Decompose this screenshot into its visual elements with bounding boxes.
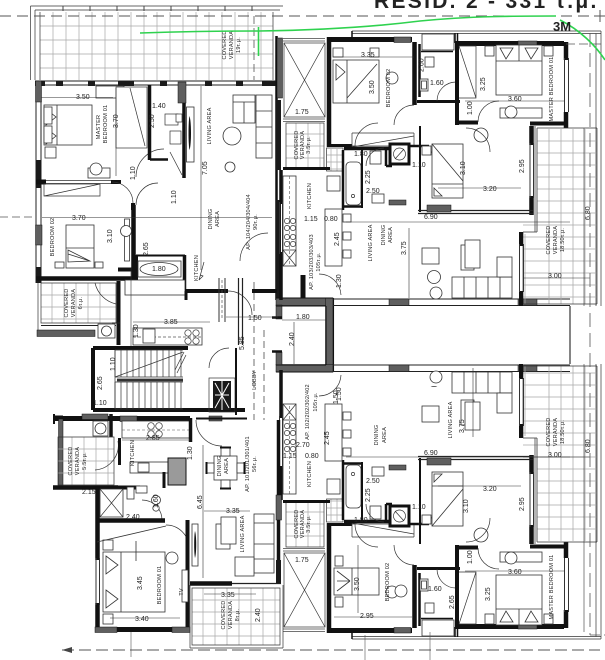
svg-text:LIVING AREA: LIVING AREA xyxy=(448,401,454,438)
svg-text:8τ.μ.: 8τ.μ. xyxy=(235,608,241,621)
svg-text:1.80: 1.80 xyxy=(354,151,368,158)
svg-text:BEDROOM 02: BEDROOM 02 xyxy=(385,563,391,602)
svg-text:0.80: 0.80 xyxy=(324,216,338,223)
svg-text:2.50: 2.50 xyxy=(366,478,380,485)
svg-text:1.10: 1.10 xyxy=(110,357,117,371)
svg-text:3.40: 3.40 xyxy=(135,616,149,623)
svg-text:1.10: 1.10 xyxy=(171,190,178,204)
svg-text:2.50: 2.50 xyxy=(149,114,156,128)
svg-text:COVERED: COVERED xyxy=(546,225,552,254)
svg-text:18.50τ.μ.: 18.50τ.μ. xyxy=(560,420,566,445)
svg-text:AREA: AREA xyxy=(215,211,221,227)
svg-text:1.60: 1.60 xyxy=(430,80,444,87)
svg-text:3.20: 3.20 xyxy=(483,186,497,193)
svg-text:7.05: 7.05 xyxy=(202,161,209,175)
svg-text:5.85: 5.85 xyxy=(239,336,246,350)
svg-text:COVERED: COVERED xyxy=(64,288,70,317)
svg-text:6.90: 6.90 xyxy=(424,214,438,221)
svg-text:2.40: 2.40 xyxy=(255,608,262,622)
svg-text:KITCHEN: KITCHEN xyxy=(130,440,136,466)
svg-text:1.10: 1.10 xyxy=(93,400,107,407)
svg-text:1.60: 1.60 xyxy=(428,586,442,593)
svg-text:2.40: 2.40 xyxy=(289,332,296,346)
svg-text:LIVING AREA: LIVING AREA xyxy=(240,515,246,552)
svg-text:3.00: 3.00 xyxy=(548,452,562,459)
svg-text:AP. 103/203/303/403: AP. 103/203/303/403 xyxy=(309,234,315,290)
svg-text:3.75: 3.75 xyxy=(401,241,408,255)
svg-text:VERANDA: VERANDA xyxy=(553,418,559,447)
svg-text:2.45: 2.45 xyxy=(334,232,341,246)
svg-text:DINING: DINING xyxy=(374,425,380,446)
svg-text:2.65: 2.65 xyxy=(449,595,456,609)
svg-text:2.65: 2.65 xyxy=(97,376,104,390)
svg-text:DINING: DINING xyxy=(381,225,387,246)
svg-text:3.70: 3.70 xyxy=(72,215,86,222)
svg-text:2.45: 2.45 xyxy=(324,431,331,445)
svg-text:3.00: 3.00 xyxy=(548,273,562,280)
svg-text:COVERED: COVERED xyxy=(68,446,74,475)
svg-text:2.95: 2.95 xyxy=(360,613,374,620)
svg-text:2.40: 2.40 xyxy=(126,514,140,521)
svg-text:3.25: 3.25 xyxy=(480,77,487,91)
svg-text:3.35: 3.35 xyxy=(226,508,240,515)
svg-text:AP. 102/202/302/402: AP. 102/202/302/402 xyxy=(305,384,311,440)
svg-text:1.10: 1.10 xyxy=(412,162,426,169)
svg-text:2.95: 2.95 xyxy=(519,497,526,511)
svg-text:VERANDA: VERANDA xyxy=(229,31,235,60)
svg-text:6.90: 6.90 xyxy=(424,450,438,457)
svg-text:2.65: 2.65 xyxy=(143,242,150,256)
svg-text:6τ.μ.: 6τ.μ. xyxy=(78,296,84,309)
svg-text:1.30: 1.30 xyxy=(336,274,343,288)
svg-text:3.70: 3.70 xyxy=(113,114,120,128)
svg-text:LIVING AREA: LIVING AREA xyxy=(368,224,374,261)
svg-text:BEDROOM 02: BEDROOM 02 xyxy=(50,218,56,257)
svg-text:3.10: 3.10 xyxy=(463,499,470,513)
svg-text:1.30: 1.30 xyxy=(187,446,194,460)
svg-text:AP. 104/204/304/404: AP. 104/204/304/404 xyxy=(246,194,252,250)
svg-text:LOBBY: LOBBY xyxy=(252,370,258,390)
svg-text:2.70: 2.70 xyxy=(296,442,310,449)
svg-text:6.80: 6.80 xyxy=(585,206,592,220)
svg-text:2.85: 2.85 xyxy=(146,435,160,442)
svg-text:3.75: 3.75 xyxy=(459,419,466,433)
svg-text:1.40: 1.40 xyxy=(152,103,166,110)
svg-text:AP. 101/201/301/401: AP. 101/201/301/401 xyxy=(245,436,251,492)
svg-text:COVERED: COVERED xyxy=(221,600,227,629)
svg-text:AREA: AREA xyxy=(224,458,230,474)
svg-text:DINING: DINING xyxy=(217,456,223,477)
svg-text:1.80: 1.80 xyxy=(354,517,368,524)
svg-text:1.80: 1.80 xyxy=(152,266,166,273)
svg-text:1.75: 1.75 xyxy=(295,557,309,564)
svg-text:VERANDA: VERANDA xyxy=(553,226,559,255)
svg-text:3.25: 3.25 xyxy=(485,587,492,601)
svg-text:1.15: 1.15 xyxy=(304,216,318,223)
svg-text:2.60: 2.60 xyxy=(419,58,426,72)
svg-text:TV: TV xyxy=(179,588,185,596)
svg-text:3.50: 3.50 xyxy=(369,80,376,94)
svg-text:VERANDA: VERANDA xyxy=(75,447,81,476)
svg-text:MASTER BEDROOM 01: MASTER BEDROOM 01 xyxy=(549,57,555,122)
svg-text:1.50: 1.50 xyxy=(248,315,262,322)
svg-text:1.10: 1.10 xyxy=(412,504,426,511)
svg-text:3.5τ.μ.: 3.5τ.μ. xyxy=(306,515,312,533)
svg-text:3.5τ.μ.: 3.5τ.μ. xyxy=(306,136,312,154)
svg-text:90τ.μ.: 90τ.μ. xyxy=(253,214,259,230)
svg-text:VERANDA: VERANDA xyxy=(228,601,234,630)
svg-text:MASTER BEDROOM 01: MASTER BEDROOM 01 xyxy=(549,555,555,620)
svg-text:3M: 3M xyxy=(553,19,571,34)
svg-text:2.15: 2.15 xyxy=(82,489,96,496)
svg-text:56τ.μ.: 56τ.μ. xyxy=(252,456,258,472)
svg-text:BEDROOM 01: BEDROOM 01 xyxy=(103,105,109,144)
svg-text:2.25: 2.25 xyxy=(365,170,372,184)
svg-text:MASTER: MASTER xyxy=(96,115,102,140)
svg-text:1.60: 1.60 xyxy=(153,494,160,508)
svg-text:1.15: 1.15 xyxy=(283,453,297,460)
svg-text:RESID. 2 - 331 τ.μ.: RESID. 2 - 331 τ.μ. xyxy=(374,0,599,13)
svg-text:2.50: 2.50 xyxy=(366,188,380,195)
svg-text:COVERED: COVERED xyxy=(222,30,228,59)
svg-text:1.10: 1.10 xyxy=(130,166,137,180)
svg-text:VERANDA: VERANDA xyxy=(71,289,77,318)
svg-text:2.95: 2.95 xyxy=(519,159,526,173)
svg-text:1.30: 1.30 xyxy=(133,324,140,338)
svg-text:KITCHEN: KITCHEN xyxy=(307,183,313,209)
svg-text:KITCHEN: KITCHEN xyxy=(307,461,313,487)
svg-text:BEDROOM 01: BEDROOM 01 xyxy=(157,566,163,605)
svg-text:3.20: 3.20 xyxy=(483,486,497,493)
svg-text:DINING: DINING xyxy=(208,209,214,230)
svg-text:6.80: 6.80 xyxy=(585,439,592,453)
svg-text:105τ.μ.: 105τ.μ. xyxy=(313,392,319,412)
svg-text:105τ.μ.: 105τ.μ. xyxy=(316,252,322,272)
svg-text:5.5τ.μ.: 5.5τ.μ. xyxy=(82,452,88,470)
svg-text:3.10: 3.10 xyxy=(107,229,114,243)
svg-text:AREA: AREA xyxy=(382,427,388,443)
svg-text:BEDROOM 02: BEDROOM 02 xyxy=(386,69,392,108)
svg-text:KITCHEN: KITCHEN xyxy=(194,255,200,281)
svg-text:3.45: 3.45 xyxy=(137,576,144,590)
svg-text:3.60: 3.60 xyxy=(508,569,522,576)
svg-text:3.85: 3.85 xyxy=(164,319,178,326)
svg-text:1.50: 1.50 xyxy=(333,390,340,404)
svg-text:19τ.μ.: 19τ.μ. xyxy=(236,37,242,53)
svg-text:LIVING AREA: LIVING AREA xyxy=(207,107,213,144)
svg-text:1.00: 1.00 xyxy=(467,101,474,115)
svg-text:3.10: 3.10 xyxy=(460,161,467,175)
svg-text:AREA: AREA xyxy=(388,227,394,243)
svg-text:3.35: 3.35 xyxy=(361,52,375,59)
svg-text:18.50τ.μ.: 18.50τ.μ. xyxy=(560,228,566,253)
svg-text:COVERED: COVERED xyxy=(546,417,552,446)
svg-text:3.50: 3.50 xyxy=(354,577,361,591)
svg-text:3.60: 3.60 xyxy=(508,96,522,103)
svg-text:3.35: 3.35 xyxy=(221,592,235,599)
svg-text:2.25: 2.25 xyxy=(365,488,372,502)
svg-text:1.00: 1.00 xyxy=(467,550,474,564)
svg-text:0.80: 0.80 xyxy=(305,453,319,460)
svg-text:1.75: 1.75 xyxy=(295,109,309,116)
